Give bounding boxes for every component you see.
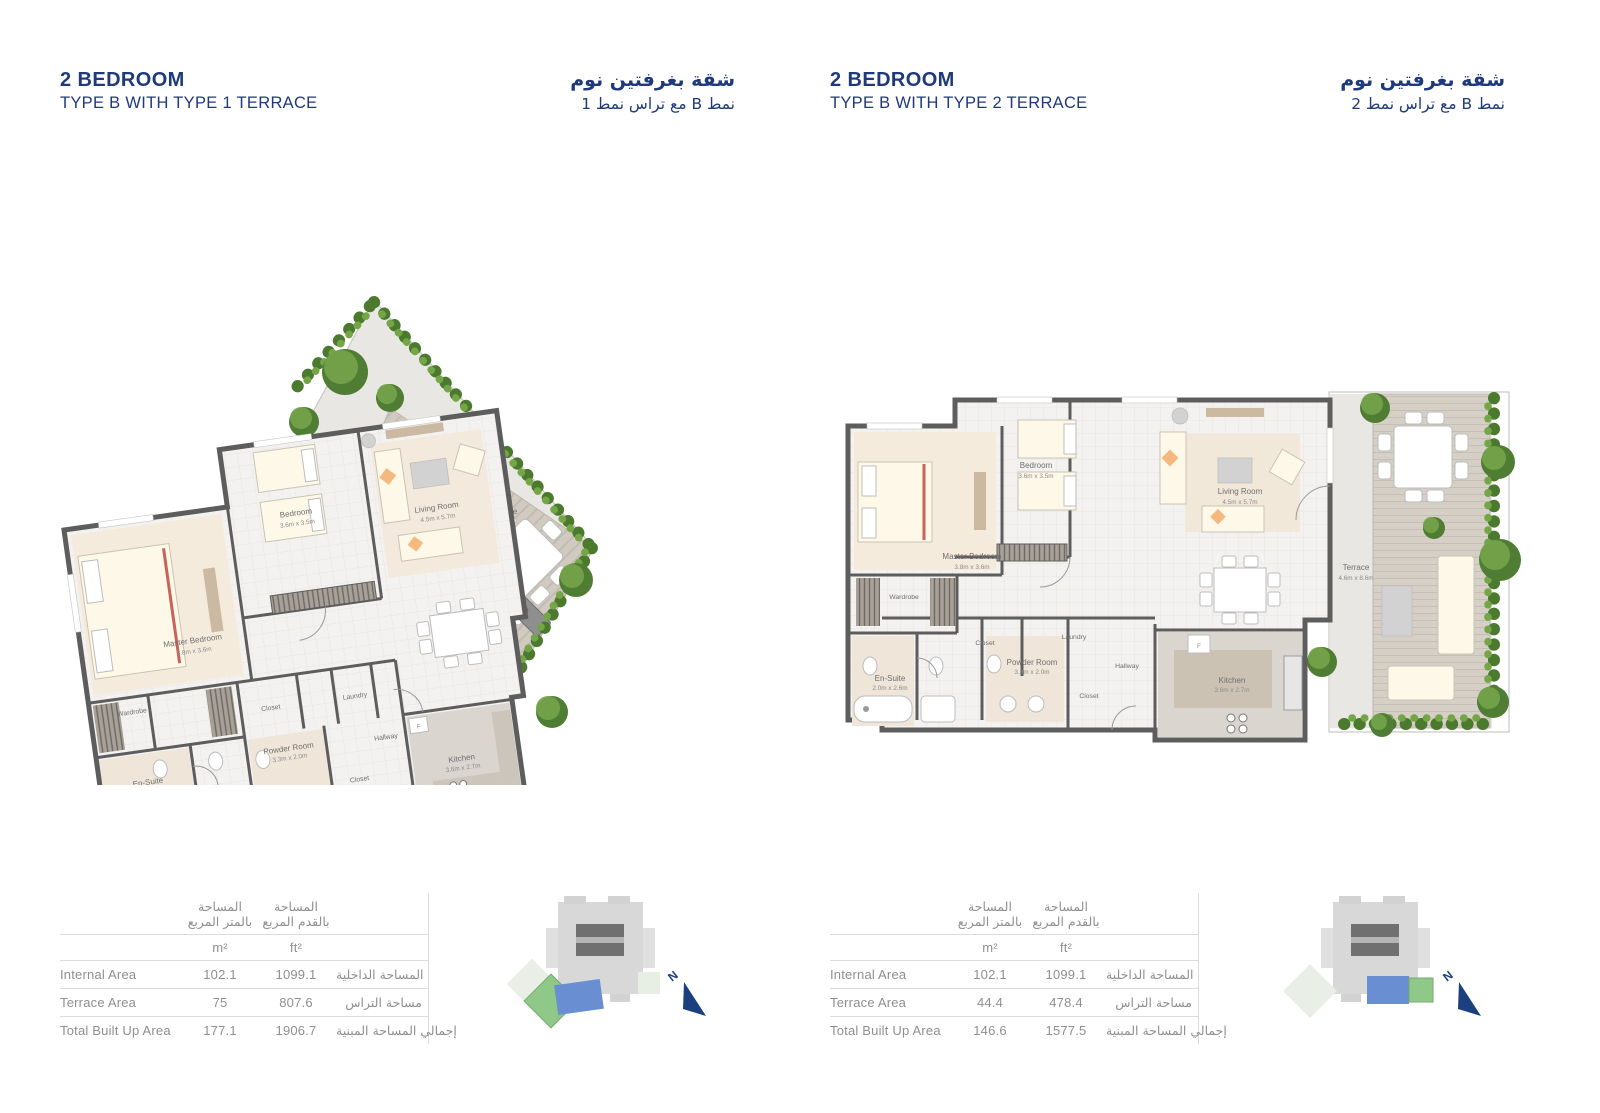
panel-header: 2 BEDROOM TYPE B WITH TYPE 1 TERRACE شقة… <box>60 68 735 115</box>
apartment-unit: F Master Bedroom 3.8m x 3.6m Bedroom 3.6… <box>848 397 1333 740</box>
locator-terrace-faded <box>1283 964 1337 1018</box>
room-label-powder: Powder Room <box>1007 658 1058 667</box>
room-label-bedroom: Bedroom <box>1020 461 1053 470</box>
dresser <box>974 472 986 530</box>
title-arabic-line1: شقة بغرفتين نوم <box>1340 68 1505 93</box>
north-arrow-icon: N <box>665 968 706 1016</box>
tree <box>1370 713 1394 737</box>
room-label-ensuite: En-Suite <box>875 674 906 683</box>
col-header-sqm: المساحةبالمتر المربع <box>184 899 256 929</box>
tree <box>1479 539 1521 581</box>
room-label-kitchen: Kitchen <box>1219 676 1246 685</box>
room-label-terrace: Terrace <box>1343 563 1370 572</box>
room-label-closet-b: Closet <box>1079 693 1098 700</box>
unit-ft2: ft² <box>1026 940 1106 955</box>
table-row-terrace: Terrace Area 44.4 478.4 مساحة التراس <box>830 988 1198 1016</box>
room-label-laundry: Laundry <box>1062 634 1087 641</box>
room-label-closet-a: Closet <box>975 640 994 647</box>
tree <box>376 384 404 412</box>
unit-m2: m² <box>184 940 256 955</box>
tree <box>1423 517 1445 539</box>
tree <box>322 349 368 395</box>
fridge-label: F <box>1197 643 1201 650</box>
compass-label: N <box>665 968 680 984</box>
title-english: 2 BEDROOM TYPE B WITH TYPE 2 TERRACE <box>830 68 1088 115</box>
svg-text:4.6m x 8.6m: 4.6m x 8.6m <box>1338 575 1373 582</box>
col-header-sqm: المساحةبالمتر المربع <box>954 899 1026 929</box>
floor-plan-type1: Terrace <box>52 280 720 785</box>
area-table: المساحةبالمتر المربع المساحةبالقدم المرب… <box>60 893 429 1044</box>
room-label-wardrobe: Wardrobe <box>889 594 919 601</box>
north-arrow-icon: N <box>1440 968 1481 1016</box>
units-row: m² ft² <box>60 934 428 960</box>
locator-terrace-highlight <box>1409 978 1433 1002</box>
table-row-terrace: Terrace Area 75 807.6 مساحة التراس <box>60 988 428 1016</box>
area-table: المساحةبالمتر المربع المساحةبالقدم المرب… <box>830 893 1199 1044</box>
title-line2: TYPE B WITH TYPE 1 TERRACE <box>60 92 318 115</box>
building-locator-map: N <box>488 886 728 1051</box>
tree <box>559 563 593 597</box>
title-line1: 2 BEDROOM <box>830 68 1088 92</box>
locator-unit-highlight <box>1367 976 1409 1004</box>
room-label-hallway: Hallway <box>1115 663 1139 670</box>
room-label-living: Living Room <box>1218 487 1263 496</box>
title-arabic-line2: نمط B مع تراس نمط 1 <box>570 93 735 115</box>
title-arabic-line2: نمط B مع تراس نمط 2 <box>1340 93 1505 115</box>
tree <box>289 407 319 437</box>
compass-label: N <box>1440 968 1455 984</box>
title-line1: 2 BEDROOM <box>60 68 318 92</box>
panel-type2-terrace: 2 BEDROOM TYPE B WITH TYPE 2 TERRACE شقة… <box>830 0 1505 1113</box>
tree <box>1481 445 1515 479</box>
panel-type1-terrace: 2 BEDROOM TYPE B WITH TYPE 1 TERRACE شقة… <box>60 0 735 1113</box>
title-english: 2 BEDROOM TYPE B WITH TYPE 1 TERRACE <box>60 68 318 115</box>
tree <box>1360 393 1390 423</box>
svg-text:3.8m x 3.6m: 3.8m x 3.6m <box>954 564 989 571</box>
apartment-unit: F Master Bedroom 3.8m x 3.6m Bedroom 3.6… <box>53 408 550 785</box>
table-row-total: Total Built Up Area 177.1 1906.7 إجمالي … <box>60 1016 428 1044</box>
title-arabic: شقة بغرفتين نوم نمط B مع تراس نمط 1 <box>570 68 735 115</box>
title-arabic-line1: شقة بغرفتين نوم <box>570 68 735 93</box>
svg-text:3.6m x 2.7m: 3.6m x 2.7m <box>1214 687 1249 694</box>
title-arabic: شقة بغرفتين نوم نمط B مع تراس نمط 2 <box>1340 68 1505 115</box>
svg-text:2.0m x 2.6m: 2.0m x 2.6m <box>872 685 907 692</box>
unit-ft2: ft² <box>256 940 336 955</box>
title-line2: TYPE B WITH TYPE 2 TERRACE <box>830 92 1088 115</box>
svg-text:4.5m x 5.7m: 4.5m x 5.7m <box>1222 499 1257 506</box>
table-row-total: Total Built Up Area 146.6 1577.5 إجمالي … <box>830 1016 1198 1044</box>
panel-header: 2 BEDROOM TYPE B WITH TYPE 2 TERRACE شقة… <box>830 68 1505 115</box>
unit-m2: m² <box>954 940 1026 955</box>
tree <box>536 696 568 728</box>
tree <box>1307 647 1337 677</box>
col-header-sqft: المساحةبالقدم المربع <box>256 899 336 929</box>
table-row-internal: Internal Area 102.1 1099.1 المساحة الداخ… <box>60 960 428 988</box>
locator-unit-highlight <box>554 979 604 1015</box>
master-bed <box>78 544 186 680</box>
units-row: m² ft² <box>830 934 1198 960</box>
master-bed <box>858 462 932 542</box>
building-locator-map: N <box>1263 886 1503 1051</box>
svg-text:3.6m x 3.5m: 3.6m x 3.5m <box>1018 473 1053 480</box>
col-header-sqft: المساحةبالقدم المربع <box>1026 899 1106 929</box>
room-label-master: Master Bedroom <box>942 552 1001 561</box>
table-row-internal: Internal Area 102.1 1099.1 المساحة الداخ… <box>830 960 1198 988</box>
floor-plan-type2: Terrace 4.6m x 8.6m <box>822 368 1522 773</box>
svg-text:3.3m x 2.0m: 3.3m x 2.0m <box>1014 669 1049 676</box>
tree <box>1477 686 1509 718</box>
terrace-area: Terrace 4.6m x 8.6m <box>1307 392 1521 737</box>
